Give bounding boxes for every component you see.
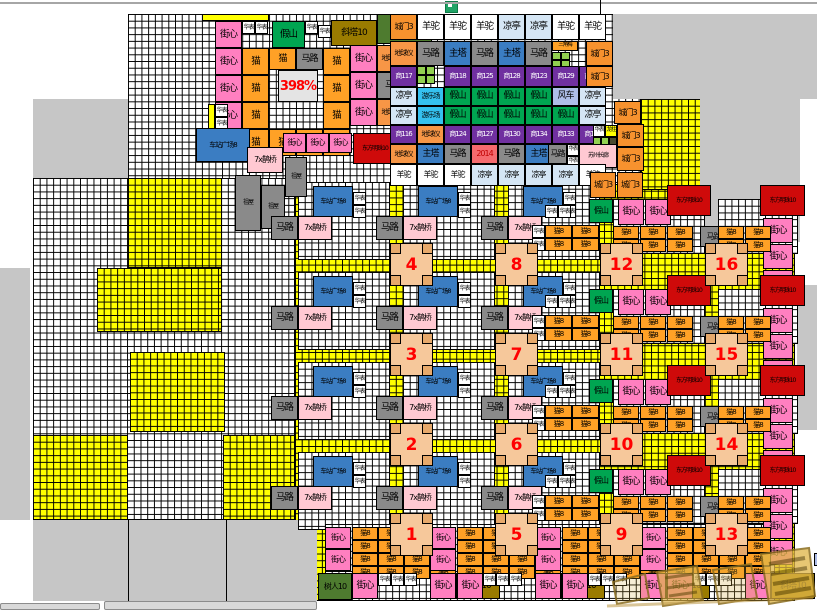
map-block-华表[interactable]: 华表 (353, 372, 366, 385)
map-block-街心[interactable]: 街心 (618, 379, 644, 405)
map-block-7x鹊桥[interactable]: 7x鹊桥 (403, 216, 437, 240)
map-block-主塔[interactable]: 主塔 (417, 144, 444, 164)
map-block-7x鹊桥[interactable]: 7x鹊桥 (403, 396, 437, 420)
map-cell[interactable] (202, 14, 269, 21)
map-block-三角梅[interactable]: 三角梅 (552, 41, 578, 51)
map-block-华表[interactable]: 华表 (532, 225, 545, 238)
map-block-猫8[interactable]: 猫8 (640, 329, 666, 342)
map-block-街心[interactable]: 街心 (618, 289, 644, 315)
map-block-猫[interactable]: 猫 (242, 48, 269, 75)
yellow-grid-region (641, 99, 701, 190)
map-block-华表[interactable]: 华表 (545, 295, 558, 308)
yellow-grid-region (97, 268, 222, 332)
map-block-华表[interactable]: 华表 (378, 573, 391, 586)
map-block-华表[interactable]: 华表 (593, 125, 605, 137)
map-block-城门3[interactable]: 城门3 (590, 172, 616, 198)
map-block-斜塔10[interactable]: 斜塔10 (771, 573, 815, 599)
map-block-华表[interactable]: 华表 (563, 462, 576, 475)
map-block-华表[interactable]: 华表 (458, 475, 471, 488)
map-block-猫8[interactable]: 猫8 (667, 329, 693, 342)
yellow-grid-region (128, 178, 222, 268)
map-block-华表[interactable]: 华表 (458, 385, 471, 398)
map-block-马路[interactable]: 马路 (376, 306, 403, 330)
map-block-羊驼[interactable]: 羊驼 (417, 14, 444, 40)
map-block-猫8[interactable]: 猫8 (718, 316, 744, 329)
map-block-街心[interactable]: 街心 (535, 527, 561, 549)
map-block-假山[interactable]: 假山 (471, 106, 498, 125)
map-block-羊驼[interactable]: 羊驼 (552, 14, 579, 40)
map-block-猫8[interactable]: 猫8 (352, 553, 378, 566)
map-block-车站广场8[interactable]: 车站广场8 (313, 456, 353, 487)
map-block-华表[interactable]: 华表 (305, 21, 318, 34)
map-block-街心[interactable]: 街心 (667, 573, 693, 599)
map-block-华表[interactable]: 华表 (563, 192, 576, 205)
map-block-猫8[interactable]: 猫8 (572, 328, 599, 341)
map-block-猫8[interactable]: 猫8 (745, 419, 771, 432)
map-block-华表[interactable]: 华表 (558, 205, 571, 218)
map-block-猫8[interactable]: 猫8 (352, 527, 378, 540)
map-block-华表[interactable]: 华表 (353, 205, 366, 218)
map-block-街心[interactable]: 街心 (640, 527, 666, 549)
map-block-街心[interactable]: 街心 (430, 527, 456, 549)
map-block-猫8[interactable]: 猫8 (640, 239, 666, 252)
map-block-华表[interactable]: 华表 (614, 573, 627, 586)
map-block-东方明珠10[interactable]: 东方明珠10 (760, 185, 805, 216)
district-number-5[interactable]: 5 (495, 513, 538, 556)
map-block-羊驼[interactable]: 羊驼 (579, 14, 606, 40)
map-block-猫8[interactable]: 猫8 (572, 315, 599, 328)
map-block-马路[interactable]: 马路 (481, 306, 508, 330)
map-block-华表[interactable]: 华表 (318, 25, 331, 38)
map-block-猫8[interactable]: 猫8 (640, 419, 666, 432)
map-block-马路[interactable]: 马路 (271, 396, 298, 420)
map-block-街心[interactable]: 街心 (430, 573, 456, 599)
map-block-华表[interactable]: 华表 (353, 192, 366, 205)
map-block-7x鹊桥[interactable]: 7x鹊桥 (403, 306, 437, 330)
background-region (0, 268, 30, 520)
map-block-街心[interactable]: 街心 (618, 469, 644, 495)
map-block-华表[interactable]: 华表 (567, 144, 579, 156)
map-block-猫8[interactable]: 猫8 (562, 540, 588, 553)
map-block-马路[interactable]: 马路 (548, 144, 567, 164)
map-block-城门3[interactable]: 城门3 (586, 66, 613, 87)
background-region (226, 520, 227, 601)
map-block-商127[interactable]: 商127 (471, 125, 498, 144)
map-block-7x鹊桥[interactable]: 7x鹊桥 (298, 396, 332, 420)
map-block-猫[interactable]: 猫 (323, 75, 350, 102)
map-block-猫8[interactable]: 猫8 (545, 328, 572, 341)
district-number-1[interactable]: 1 (390, 513, 433, 556)
map-block-华表[interactable]: 华表 (706, 573, 719, 586)
map-block-猫8[interactable]: 猫8 (562, 553, 588, 566)
map-block-猫8[interactable]: 猫8 (545, 225, 572, 238)
map-block-猫8[interactable]: 猫8 (667, 527, 693, 540)
map-block-凉亭[interactable]: 凉亭 (498, 14, 525, 40)
map-block-猫8[interactable]: 猫8 (667, 496, 693, 509)
map-block-街心[interactable]: 街心 (350, 72, 377, 99)
bottom-tab[interactable] (104, 601, 317, 610)
map-block-马路[interactable]: 马路 (296, 48, 323, 70)
map-block-马路[interactable]: 马路 (271, 306, 298, 330)
map-block-猫8[interactable]: 猫8 (745, 226, 771, 239)
map-block-假山[interactable]: 假山 (589, 469, 613, 493)
district-number-10[interactable]: 10 (600, 423, 643, 466)
map-block-猫8[interactable]: 猫8 (667, 316, 693, 329)
map-block-猫8[interactable]: 猫8 (667, 553, 693, 566)
map-block-猫8[interactable]: 猫8 (667, 406, 693, 419)
district-number-2[interactable]: 2 (390, 423, 433, 466)
map-cell[interactable] (561, 52, 570, 60)
map-block-街心[interactable]: 街心 (215, 21, 242, 48)
map-block-华表[interactable]: 华表 (532, 405, 545, 418)
map-block-城门3[interactable]: 城门3 (617, 172, 643, 198)
map-block-华表[interactable]: 华表 (509, 573, 522, 586)
map-block-华表[interactable]: 华表 (601, 573, 614, 586)
map-block-羊驼[interactable]: 羊驼 (390, 164, 417, 186)
map-block-猫8[interactable]: 猫8 (667, 509, 693, 522)
map-block-街心[interactable]: 街心 (215, 75, 242, 102)
map-block-猫8[interactable]: 猫8 (545, 238, 572, 251)
map-block-祖屋[interactable]: 祖屋 (235, 175, 261, 231)
map-block-商116[interactable]: 商116 (390, 125, 417, 144)
map-block-商128[interactable]: 商128 (498, 66, 525, 87)
map-block-假山[interactable]: 假山 (272, 21, 305, 48)
map-block-猫8[interactable]: 猫8 (667, 226, 693, 239)
map-block-龙柱[interactable]: 龙柱 (605, 125, 617, 137)
map-block-假山[interactable]: 假山 (444, 106, 471, 125)
map-block-华表[interactable]: 华表 (545, 475, 558, 488)
map-block-商125[interactable]: 商125 (471, 66, 498, 87)
map-block-马路[interactable]: 马路 (271, 216, 298, 240)
map-block-街心[interactable]: 街心 (325, 527, 351, 549)
map-block-街心[interactable]: 街心 (350, 99, 377, 126)
map-block-华表[interactable]: 华表 (458, 462, 471, 475)
background-region (0, 520, 33, 611)
map-block-羊驼[interactable]: 羊驼 (444, 164, 471, 186)
background-region (33, 520, 317, 601)
map-block-马路[interactable]: 马路 (376, 216, 403, 240)
map-block-猫8[interactable]: 猫8 (667, 540, 693, 553)
map-block-猫8[interactable]: 猫8 (572, 418, 599, 431)
map-block-猫8[interactable]: 猫8 (572, 495, 599, 508)
map-block-猫8[interactable]: 猫8 (745, 553, 771, 566)
map-block-华表[interactable]: 华表 (588, 573, 601, 586)
map-block-猫8[interactable]: 猫8 (613, 226, 639, 239)
map-block-商130[interactable]: 商130 (498, 125, 525, 144)
map-block-2014[interactable]: 2014 (471, 144, 498, 164)
map-block-街心[interactable]: 街心 (325, 549, 351, 571)
map-block-华表[interactable]: 华表 (215, 104, 228, 117)
district-number-8[interactable]: 8 (495, 243, 538, 286)
map-block-风车[interactable]: 风车 (552, 87, 579, 106)
map-block-猫8[interactable]: 猫8 (545, 405, 572, 418)
map-block-马路[interactable]: 马路 (525, 41, 552, 66)
yellow-grid-region (33, 435, 128, 520)
map-block-马路[interactable]: 马路 (481, 396, 508, 420)
map-block-猫8[interactable]: 猫8 (745, 496, 771, 509)
map-block-地球仪[interactable]: 地球仪 (390, 41, 417, 66)
map-block-城门3[interactable]: 城门3 (586, 41, 613, 66)
background-region (600, 0, 601, 14)
map-block-猫[interactable]: 猫 (242, 102, 269, 129)
map-block-7x鹊桥[interactable]: 7x鹊桥 (298, 216, 332, 240)
map-block-东方明珠10[interactable]: 东方明珠10 (760, 455, 805, 486)
map-block-假山[interactable]: 假山 (589, 379, 613, 403)
map-block-羊驼[interactable]: 羊驼 (471, 14, 498, 40)
map-block-东方明珠10[interactable]: 东方明珠10 (760, 365, 805, 396)
map-block-猫8[interactable]: 猫8 (640, 496, 666, 509)
map-block-商118[interactable]: 商118 (444, 66, 471, 87)
map-block-猫8[interactable]: 猫8 (667, 419, 693, 432)
map-block-羊驼[interactable]: 羊驼 (417, 164, 444, 186)
map-block-华表[interactable]: 华表 (458, 282, 471, 295)
map-block-猫[interactable]: 猫 (242, 75, 269, 102)
map-cell[interactable] (417, 75, 426, 84)
map-block-街心[interactable]: 街心 (215, 48, 242, 75)
map-block-猫8[interactable]: 猫8 (572, 405, 599, 418)
map-block-假山[interactable]: 假山 (552, 106, 579, 125)
map-block-华表[interactable]: 华表 (255, 21, 268, 34)
map-block-华表[interactable]: 华表 (404, 573, 417, 586)
map-block-马路[interactable]: 马路 (417, 41, 444, 66)
background-region (0, 4, 33, 268)
map-block-猫8[interactable]: 猫8 (613, 496, 639, 509)
map-block-猫8[interactable]: 猫8 (613, 316, 639, 329)
map-block-猫8[interactable]: 猫8 (745, 406, 771, 419)
district-number-6[interactable]: 6 (495, 423, 538, 466)
map-block-猫8[interactable]: 猫8 (640, 509, 666, 522)
map-block-假山[interactable]: 假山 (525, 106, 552, 125)
map-block-主塔[interactable]: 主塔 (444, 41, 471, 66)
district-number-16[interactable]: 16 (705, 243, 748, 286)
district-number-3[interactable]: 3 (390, 333, 433, 376)
map-block-华表[interactable]: 华表 (532, 495, 545, 508)
map-block-猫8[interactable]: 猫8 (745, 239, 771, 252)
map-block-猫8[interactable]: 猫8 (545, 508, 572, 521)
map-block-猫8[interactable]: 猫8 (613, 406, 639, 419)
map-block-7x鹊桥[interactable]: 7x鹊桥 (247, 147, 283, 173)
map-block-车站广场8[interactable]: 车站广场8 (313, 366, 353, 397)
map-block-猫[interactable]: 猫 (269, 48, 296, 70)
map-block-斜塔10[interactable]: 斜塔10 (331, 20, 377, 46)
map-block-猫8[interactable]: 猫8 (545, 495, 572, 508)
map-block-7x鹊桥[interactable]: 7x鹊桥 (298, 306, 332, 330)
map-block-猫8[interactable]: 猫8 (572, 238, 599, 251)
map-block-街心[interactable]: 街心 (350, 45, 377, 72)
map-block-东方明珠10[interactable]: 东方明珠10 (760, 275, 805, 306)
map-block-地球仪[interactable]: 地球仪 (417, 125, 444, 144)
map-block-华表[interactable]: 华表 (353, 475, 366, 488)
map-block-猫8[interactable]: 猫8 (457, 553, 483, 566)
map-block-猫8[interactable]: 猫8 (572, 225, 599, 238)
map-block-街心[interactable]: 街心 (306, 133, 329, 153)
bottom-tab[interactable] (0, 603, 100, 610)
map-block-凉亭[interactable]: 凉亭 (390, 106, 417, 125)
map-block-商134[interactable]: 商134 (525, 125, 552, 144)
district-number-12[interactable]: 12 (600, 243, 643, 286)
map-block-华表[interactable]: 华表 (458, 372, 471, 385)
map-block-东方明珠10[interactable]: 东方明珠10 (667, 185, 711, 216)
background-region (128, 520, 129, 601)
map-block-城门3[interactable]: 城门3 (390, 14, 417, 40)
map-block-游乐场[interactable]: 游乐场 (417, 106, 444, 125)
map-block-华表[interactable]: 华表 (483, 573, 496, 586)
map-block-猫8[interactable]: 猫8 (352, 540, 378, 553)
map-block-马路[interactable]: 马路 (376, 396, 403, 420)
map-block-华表[interactable]: 华表 (693, 573, 706, 586)
map-block-假山[interactable]: 假山 (589, 289, 613, 313)
map-block-假山[interactable]: 假山 (525, 87, 552, 106)
map-block-猫8[interactable]: 猫8 (745, 329, 771, 342)
map-block-假山[interactable]: 假山 (444, 87, 471, 106)
map-block-7x鹊桥[interactable]: 7x鹊桥 (403, 486, 437, 510)
map-block-猫8[interactable]: 猫8 (640, 316, 666, 329)
map-cell[interactable] (426, 66, 435, 75)
map-block-凉亭[interactable]: 凉亭 (579, 106, 606, 125)
map-block-猫8[interactable]: 猫8 (745, 540, 771, 553)
map-block-城门3[interactable]: 城门3 (614, 101, 641, 124)
map-block-车站广场8[interactable]: 车站广场8 (418, 186, 458, 217)
map-block-凉亭[interactable]: 凉亭 (525, 164, 552, 186)
map-block-车站广场8[interactable]: 车站广场8 (313, 276, 353, 307)
map-block-假山[interactable]: 假山 (589, 199, 613, 223)
map-block-猫8[interactable]: 猫8 (718, 226, 744, 239)
map-cell[interactable] (417, 66, 426, 75)
map-block-华表[interactable]: 华表 (458, 295, 471, 308)
map-block-凉亭[interactable]: 凉亭 (552, 164, 579, 186)
map-block-华表[interactable]: 华表 (545, 385, 558, 398)
map-block-马路[interactable]: 马路 (481, 486, 508, 510)
map-block-7x鹊桥[interactable]: 7x鹊桥 (298, 486, 332, 510)
map-block-华表[interactable]: 华表 (353, 295, 366, 308)
district-number-9[interactable]: 9 (600, 513, 643, 556)
district-number-11[interactable]: 11 (600, 333, 643, 376)
background-region (613, 14, 817, 99)
map-block-假山[interactable]: 假山 (498, 87, 525, 106)
district-number-13[interactable]: 13 (705, 513, 748, 556)
map-block-猫8[interactable]: 猫8 (572, 508, 599, 521)
map-block-猫[interactable]: 猫 (323, 48, 350, 75)
map-block-街心[interactable]: 街心 (430, 549, 456, 571)
map-block-华表[interactable]: 华表 (719, 573, 732, 586)
map-block-华表[interactable]: 华表 (558, 385, 571, 398)
map-block-祖屋[interactable]: 祖屋 (285, 157, 307, 197)
map-block-马路[interactable]: 马路 (481, 216, 508, 240)
map-block-猫8[interactable]: 猫8 (545, 315, 572, 328)
map-block-华表[interactable]: 华表 (532, 315, 545, 328)
district-number-4[interactable]: 4 (390, 243, 433, 286)
yellow-grid-region (130, 352, 225, 432)
map-block-猫8[interactable]: 猫8 (640, 406, 666, 419)
map-block-马路[interactable]: 马路 (376, 486, 403, 510)
map-block-凉亭[interactable]: 凉亭 (579, 87, 606, 106)
map-block-街心[interactable]: 街心 (640, 573, 666, 599)
map-block-地球仪[interactable]: 地球仪 (390, 144, 417, 164)
map-block-街心[interactable]: 街心 (283, 133, 306, 153)
map-block-猫8[interactable]: 猫8 (545, 418, 572, 431)
map-block-华表[interactable]: 华表 (353, 282, 366, 295)
map-block-街心[interactable]: 街心 (457, 573, 483, 599)
map-block-华表[interactable]: 华表 (558, 475, 571, 488)
map-block-羊驼[interactable]: 羊驼 (444, 14, 471, 40)
map-block-街心[interactable]: 街心 (562, 573, 588, 599)
district-number-14[interactable]: 14 (705, 423, 748, 466)
map-block-街心[interactable]: 街心 (618, 199, 644, 225)
map-block-街心[interactable]: 街心 (352, 573, 378, 599)
map-block-华表[interactable]: 华表 (563, 372, 576, 385)
map-block-商133[interactable]: 商133 (552, 125, 579, 144)
map-block-主塔[interactable]: 主塔 (498, 41, 525, 66)
map-cell[interactable] (426, 75, 435, 84)
map-block-华表[interactable]: 华表 (458, 205, 471, 218)
map-block-猫8[interactable]: 猫8 (745, 509, 771, 522)
map-block-商129[interactable]: 商129 (552, 66, 579, 87)
background-region (0, 2, 817, 4)
map-block-华表[interactable]: 华表 (563, 282, 576, 295)
map-block-猫[interactable]: 猫 (323, 102, 350, 129)
map-block-凉亭[interactable]: 凉亭 (525, 14, 552, 40)
map-block-华表[interactable]: 华表 (458, 192, 471, 205)
map-block-假山[interactable]: 假山 (498, 106, 525, 125)
map-block-华表[interactable]: 华表 (353, 385, 366, 398)
map-block-马路[interactable]: 马路 (471, 41, 498, 66)
map-block-街心[interactable]: 街心 (329, 133, 352, 153)
map-block-华表[interactable]: 华表 (558, 295, 571, 308)
map-block-猫8[interactable]: 猫8 (640, 226, 666, 239)
map-block-华表[interactable]: 华表 (353, 462, 366, 475)
map-block-猫8[interactable]: 猫8 (745, 316, 771, 329)
map-block-猫8[interactable]: 猫8 (745, 527, 771, 540)
map-block-城门3[interactable]: 城门3 (617, 124, 644, 147)
map-block-马路[interactable]: 马路 (444, 144, 471, 164)
map-block-游乐场[interactable]: 游乐场 (417, 87, 444, 106)
map-block-马路[interactable]: 马路 (271, 486, 298, 510)
map-block-398%[interactable]: 398% (278, 70, 318, 102)
map-block-车站广场8[interactable]: 车站广场8 (196, 128, 250, 162)
map-block-街心[interactable]: 街心 (535, 549, 561, 571)
map-block-猫8[interactable]: 猫8 (562, 527, 588, 540)
map-block-华表[interactable]: 华表 (391, 573, 404, 586)
map-block-凉亭[interactable]: 凉亭 (471, 164, 498, 186)
background-region (797, 285, 817, 430)
district-number-7[interactable]: 7 (495, 333, 538, 376)
map-block-猫8[interactable]: 猫8 (667, 239, 693, 252)
map-block-商123[interactable]: 商123 (525, 66, 552, 87)
layout-spreadsheet: 街心街心街心街心华表华表假山华表华表斜塔10一年树人10猫猫猫猫猫马路猫猫猫猫猫… (0, 0, 817, 611)
map-block-商124[interactable]: 商124 (444, 125, 471, 144)
district-number-15[interactable]: 15 (705, 333, 748, 376)
map-block-树人10[interactable]: 树人10 (318, 573, 352, 600)
map-block-马路[interactable]: 马路 (498, 144, 525, 164)
map-block-猫8[interactable]: 猫8 (457, 527, 483, 540)
map-block-商117[interactable]: 商117 (390, 66, 417, 87)
map-block-假山[interactable]: 假山 (471, 87, 498, 106)
map-block-街心[interactable]: 街心 (640, 549, 666, 571)
map-block-城门3[interactable]: 城门3 (617, 147, 644, 171)
map-block-街心[interactable]: 街心 (745, 573, 771, 599)
map-block-华表[interactable]: 华表 (496, 573, 509, 586)
map-block-凉亭[interactable]: 凉亭 (498, 164, 525, 186)
map-block-猫8[interactable]: 猫8 (457, 540, 483, 553)
map-block-华表[interactable]: 华表 (242, 21, 255, 34)
map-block-猫8[interactable]: 猫8 (718, 406, 744, 419)
map-block-猫8[interactable]: 猫8 (718, 496, 744, 509)
map-block-街心[interactable]: 街心 (535, 573, 561, 599)
map-block-车站广场8[interactable]: 车站广场8 (313, 186, 353, 217)
map-block-华表[interactable]: 华表 (545, 205, 558, 218)
map-cell[interactable] (552, 52, 561, 60)
map-block-凉亭[interactable]: 凉亭 (390, 87, 417, 106)
